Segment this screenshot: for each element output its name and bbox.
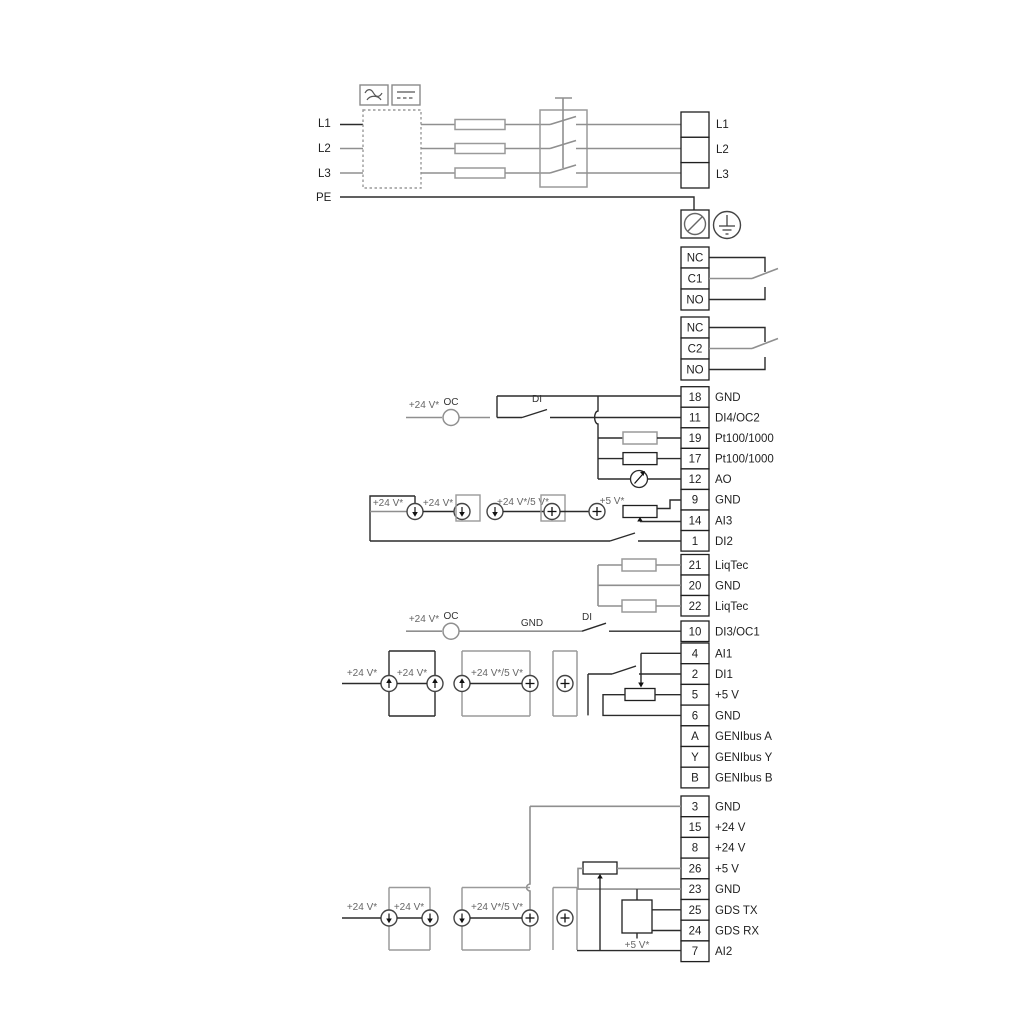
terminal-7-label: AI2 — [715, 946, 732, 958]
current-source-icon — [427, 676, 443, 692]
power-in-label-pe: PE — [316, 192, 332, 204]
terminal-21-label: LiqTec — [715, 560, 748, 572]
terminal-2: 2 — [692, 669, 698, 681]
voltage-source-icon — [557, 676, 573, 692]
io-terminal-block: 18 11 19 17 12 9 14 1 GND DI4/OC2 Pt100/… — [681, 387, 774, 551]
terminal-4-label: AI1 — [715, 648, 732, 660]
terminal-7: 7 — [692, 946, 698, 958]
wiper-arrow — [638, 683, 644, 688]
ai3-sensor-options: +24 V* +24 V* +24 V*/5 V* +5 V* — [370, 495, 681, 541]
dc-symbol-icon — [392, 85, 420, 105]
terminal-17: 17 — [689, 454, 702, 466]
current-source-icon — [454, 910, 470, 926]
relay1-contact — [709, 258, 778, 300]
p24-label: +24 V* — [409, 614, 439, 625]
pt100-sensor-2 — [623, 453, 657, 465]
gnd-label: GND — [521, 618, 543, 629]
terminal-9-label: GND — [715, 495, 741, 507]
terminal-26: 26 — [689, 863, 702, 875]
relay2-block: NC C2 NO — [681, 317, 778, 380]
terminal-23: 23 — [689, 884, 702, 896]
p5-label: +5 V* — [625, 940, 650, 951]
analog-output-meter-icon — [631, 471, 648, 488]
di-label: DI — [532, 394, 542, 405]
terminal-20: 20 — [689, 581, 702, 593]
terminal-15: 15 — [689, 822, 702, 834]
terminal-y: Y — [691, 752, 699, 764]
pt100-sensor-1 — [623, 432, 657, 444]
terminal-3-label: GND — [715, 801, 741, 813]
terminal-10: 10 — [689, 627, 702, 639]
terminal-8-label: +24 V — [715, 843, 746, 855]
terminal-6-label: GND — [715, 710, 741, 722]
relay2-no: NO — [686, 365, 703, 377]
relay2-c2: C2 — [688, 344, 703, 356]
comm-terminal-block: 4 2 5 6 A Y B AI1 DI1 +5 V GND GENIbus A… — [681, 643, 773, 788]
p24-label: +24 V* — [409, 400, 439, 411]
power-in-label-l1: L1 — [318, 118, 331, 130]
terminal-a-label: GENIbus A — [715, 731, 772, 743]
terminal-24: 24 — [689, 926, 702, 938]
terminal-18: 18 — [689, 392, 702, 404]
voltage-source-icon — [522, 910, 538, 926]
relay1-c1: C1 — [688, 274, 703, 286]
relay1-no: NO — [686, 295, 703, 307]
current-source-icon — [422, 910, 438, 926]
terminal-10-label: DI3/OC1 — [715, 627, 760, 639]
fuse-l1 — [455, 120, 505, 130]
pe-screw-terminal — [681, 210, 709, 238]
terminal-9: 9 — [692, 495, 698, 507]
terminal-22-label: LiqTec — [715, 601, 748, 613]
terminal-17-label: Pt100/1000 — [715, 454, 774, 466]
terminal-8: 8 — [692, 843, 698, 855]
current-source-icon — [381, 676, 397, 692]
relay1-nc: NC — [687, 253, 704, 265]
terminal-22: 22 — [689, 601, 702, 613]
di-label: DI — [582, 612, 592, 623]
terminal-11: 11 — [689, 413, 701, 425]
terminal-14: 14 — [689, 515, 702, 527]
liqtec-sensor-2 — [622, 600, 656, 612]
p24-label: +24 V* — [347, 902, 377, 913]
terminal-11-label: DI4/OC2 — [715, 413, 760, 425]
bottom-terminal-block: 3 15 8 26 23 25 24 7 GND +24 V +24 V +5 … — [681, 796, 759, 962]
terminal-6: 6 — [692, 710, 698, 722]
oc-label: OC — [444, 611, 459, 622]
terminal-21: 21 — [689, 560, 702, 572]
terminal-b: B — [691, 773, 699, 785]
p24-label: +24 V* — [397, 668, 427, 679]
p24-label: +24 V* — [394, 902, 424, 913]
current-source-icon — [407, 504, 423, 520]
terminal-5-label: +5 V — [715, 690, 739, 702]
wiring-diagram-page: L1 L2 L3 PE — [0, 0, 1024, 1024]
relay2-nc: NC — [687, 323, 704, 335]
terminal-12: 12 — [689, 474, 702, 486]
ac-waveform-icon — [360, 85, 388, 105]
terminal-19-label: Pt100/1000 — [715, 433, 774, 445]
wiring-diagram: L1 L2 L3 PE — [0, 0, 1024, 1024]
earth-ground-icon — [714, 212, 741, 239]
voltage-source-icon — [557, 910, 573, 926]
voltage-source-icon — [544, 504, 560, 520]
ai2-potentiometer — [583, 862, 617, 874]
current-source-icon — [454, 676, 470, 692]
voltage-source-icon — [522, 676, 538, 692]
liqtec-sensors — [598, 559, 681, 612]
terminal-12-label: AO — [715, 474, 732, 486]
relay1-block: NC C1 NO — [681, 247, 778, 310]
terminal-25-label: GDS TX — [715, 905, 758, 917]
terminal-26-label: +5 V — [715, 863, 739, 875]
power-out-label-l2: L2 — [716, 144, 729, 156]
fuse-l3 — [455, 168, 505, 178]
power-out-label-l1: L1 — [716, 119, 729, 131]
p24-label: +24 V* — [347, 668, 377, 679]
relay2-contact — [709, 328, 778, 370]
p5-label: +5 V* — [600, 496, 625, 507]
terminal-a: A — [691, 731, 699, 743]
terminal-24-label: GDS RX — [715, 926, 759, 938]
terminal-2-label: DI1 — [715, 669, 733, 681]
terminal-4: 4 — [692, 648, 699, 660]
power-out-label-l3: L3 — [716, 169, 729, 181]
p24-label: +24 V* — [423, 498, 453, 509]
filter-box — [363, 110, 421, 188]
terminal-19: 19 — [689, 433, 702, 445]
terminal-23-label: GND — [715, 884, 741, 896]
p24-5-label: +24 V*/5 V* — [471, 902, 523, 913]
terminal-y-label: GENIbus Y — [715, 752, 773, 764]
p24-label: +24 V* — [373, 498, 403, 509]
terminal-b-label: GENIbus B — [715, 773, 773, 785]
terminal-5: 5 — [692, 690, 698, 702]
power-in-label-l3: L3 — [318, 168, 331, 180]
oc-node — [443, 410, 459, 426]
terminal-3: 3 — [692, 801, 698, 813]
ai1-sensor-options: +24 V* +24 V* +24 V*/5 V* — [342, 651, 681, 716]
liqtec-sensor-1 — [622, 559, 656, 571]
ai3-potentiometer — [623, 506, 657, 518]
terminal-20-label: GND — [715, 581, 741, 593]
gds-sensor-module — [622, 900, 652, 933]
power-in-label-l2: L2 — [318, 143, 331, 155]
terminal-1-label: DI2 — [715, 536, 733, 548]
oc-node — [443, 623, 459, 639]
terminal-14-label: AI3 — [715, 515, 732, 527]
p24-5-label: +24 V*/5 V* — [471, 668, 523, 679]
wiper-arrow — [597, 874, 603, 879]
ai2-sensor-options: +24 V* +24 V* +24 V*/5 V* +5 V* — [342, 806, 681, 951]
terminal-15-label: +24 V — [715, 822, 746, 834]
oc-label: OC — [444, 397, 459, 408]
di4-oc2-circuit: +24 V* OC DI — [406, 394, 681, 488]
ai1-potentiometer — [625, 689, 655, 701]
power-section: L1 L2 L3 PE — [316, 85, 741, 239]
liqtec-terminal-block: 21 20 22 LiqTec GND LiqTec — [598, 555, 748, 617]
terminal-1: 1 — [692, 536, 698, 548]
terminal-18-label: GND — [715, 392, 741, 404]
terminal-25: 25 — [689, 905, 702, 917]
fuse-l2 — [455, 144, 505, 154]
mains-terminal-block: L1 L2 L3 — [681, 112, 729, 188]
